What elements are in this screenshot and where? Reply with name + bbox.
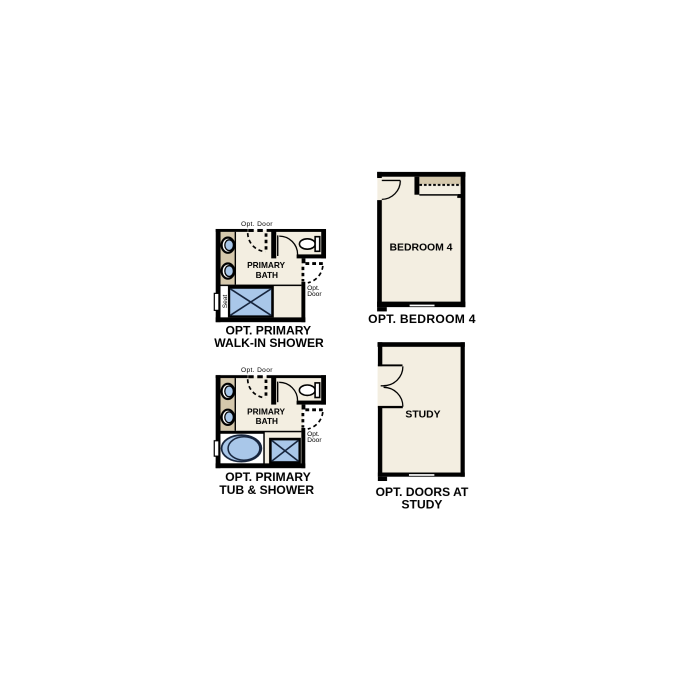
svg-text:Opt. Door: Opt. Door: [241, 221, 273, 228]
svg-text:PRIMARY: PRIMARY: [247, 406, 285, 416]
svg-text:Opt. Door: Opt. Door: [241, 367, 273, 374]
svg-text:STUDY: STUDY: [401, 498, 442, 512]
svg-text:Seat: Seat: [222, 295, 229, 309]
svg-text:BATH: BATH: [256, 270, 278, 280]
svg-text:STUDY: STUDY: [405, 409, 440, 420]
svg-text:PRIMARY: PRIMARY: [247, 260, 285, 270]
svg-text:OPT. BEDROOM 4: OPT. BEDROOM 4: [368, 312, 476, 326]
svg-text:Door: Door: [307, 291, 322, 298]
svg-text:BATH: BATH: [256, 416, 278, 426]
svg-text:WALK-IN SHOWER: WALK-IN SHOWER: [214, 336, 324, 350]
svg-text:Door: Door: [307, 437, 322, 444]
svg-text:TUB & SHOWER: TUB & SHOWER: [219, 483, 314, 497]
svg-text:BEDROOM 4: BEDROOM 4: [390, 243, 453, 254]
